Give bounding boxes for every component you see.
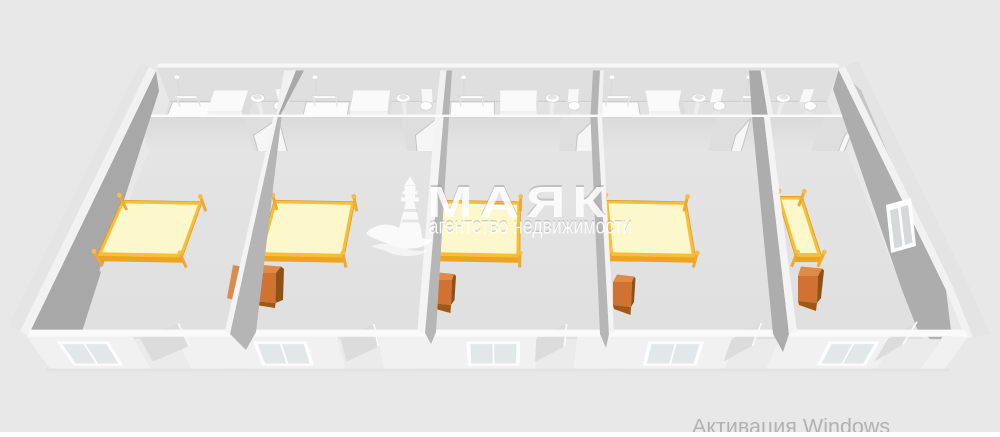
svg-text:Активация Windows: Активация Windows [692,415,890,433]
svg-text:агентство недвижимости: агентство недвижимости [429,215,632,239]
